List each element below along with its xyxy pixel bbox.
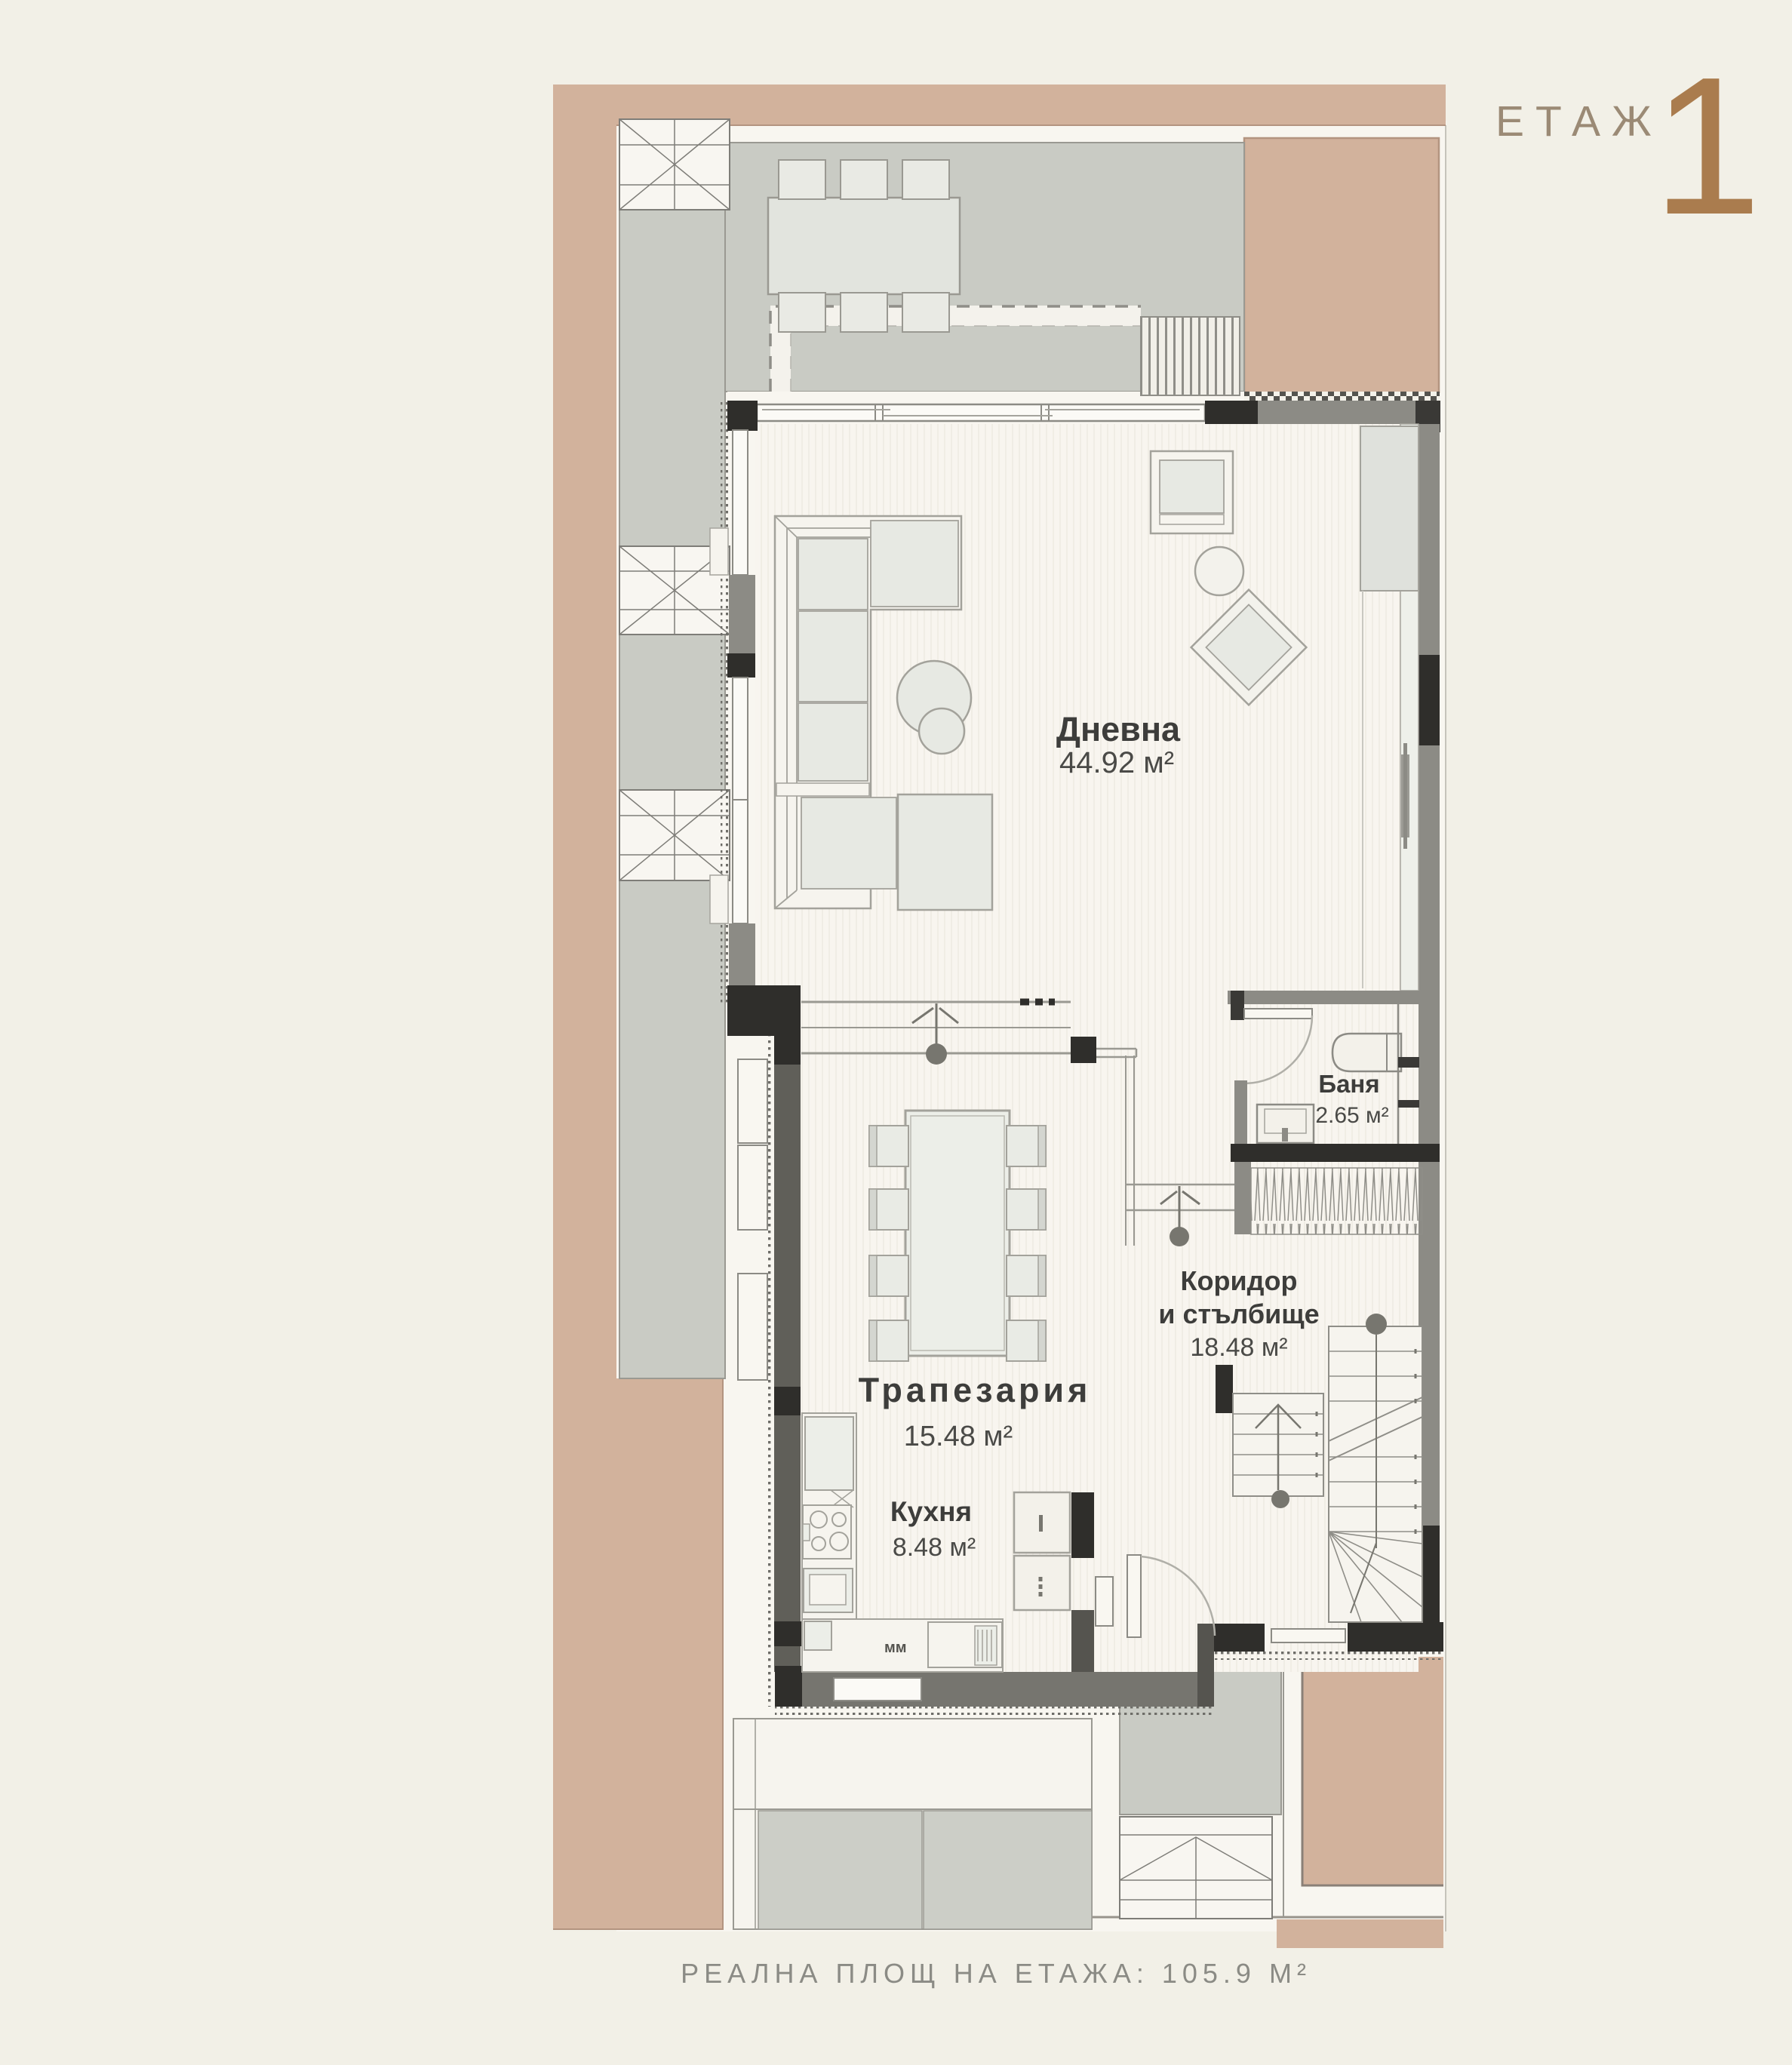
svg-text:15.48 м²: 15.48 м²	[904, 1421, 1013, 1452]
svg-text:ЕТАЖ: ЕТАЖ	[1495, 97, 1663, 146]
svg-text:мм: мм	[884, 1639, 907, 1656]
svg-text:1: 1	[1652, 37, 1762, 256]
svg-text:18.48 м²: 18.48 м²	[1190, 1333, 1287, 1362]
svg-text:8.48 м²: 8.48 м²	[893, 1533, 976, 1562]
svg-text:Кухня: Кухня	[890, 1496, 972, 1527]
svg-text:РЕАЛНА ПЛОЩ НА ЕТАЖА: 105.9 М²: РЕАЛНА ПЛОЩ НА ЕТАЖА: 105.9 М²	[681, 1958, 1311, 1989]
svg-text:Дневна: Дневна	[1056, 710, 1181, 748]
svg-text:Баня: Баня	[1318, 1070, 1379, 1098]
svg-text:44.92 м²: 44.92 м²	[1059, 746, 1174, 779]
svg-text:Коридор: Коридор	[1181, 1265, 1298, 1296]
svg-text:2.65 м²: 2.65 м²	[1315, 1103, 1388, 1128]
svg-text:Трапезария: Трапезария	[859, 1371, 1092, 1409]
svg-text:и стълбище: и стълбище	[1158, 1298, 1319, 1329]
